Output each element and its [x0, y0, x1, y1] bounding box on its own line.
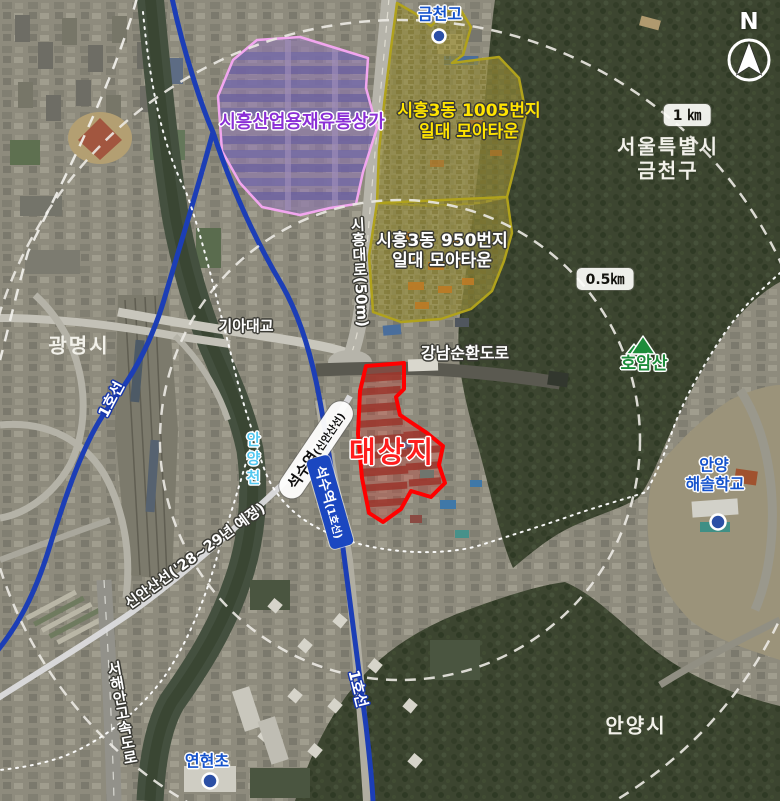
city-label-seoul-line1: 서울특별시	[617, 137, 719, 158]
satellite-map: N 금천고 시흥산업용재유통상가 시흥3동 1005번지 일대 모아타운 시흥3…	[0, 0, 780, 801]
seoksu-station-line1-line: (1호선)	[323, 502, 345, 540]
zone-site-label: 대상지	[349, 437, 435, 467]
poi-geumcheon-high-label: 금천고	[418, 7, 462, 24]
yeonhyeon-elementary-dot	[203, 774, 218, 789]
zone-moatown-1005-label-line1: 시흥3동 1005번지	[397, 103, 540, 121]
city-label-anyang: 안양시	[605, 716, 666, 737]
scale-label-500m: 0.5㎞	[577, 268, 634, 290]
poi-yeonhyeon-label: 연현초	[185, 754, 229, 771]
zone-market-label: 시흥산업용재유통상가	[219, 114, 385, 133]
scale-label-1km: 1 ㎞	[664, 104, 711, 126]
compass-n-label: N	[739, 10, 758, 34]
zone-moatown-1005-label-line2: 일대 모아타운	[419, 124, 519, 142]
geumcheon-high-dot	[433, 30, 446, 43]
poi-kia-bridge-label: 기아대교	[218, 319, 273, 335]
poi-anyang-haesol-label-line2: 해솔학교	[686, 477, 745, 494]
poi-anyang-haesol-label-line1: 안양	[699, 458, 728, 475]
zone-moatown-950-label-line1: 시흥3동 950번지	[376, 233, 507, 251]
anyang-haesol-school-dot	[711, 515, 726, 530]
zone-moatown-950-label-line2: 일대 모아타운	[392, 253, 492, 271]
road-gangnam-beltway-label: 강남순환도로	[421, 346, 509, 363]
city-label-gwangmyeong: 광명시	[48, 336, 109, 357]
anyang-stream-label: 안양천	[244, 432, 260, 489]
city-label-seoul-line2: 금천구	[637, 161, 698, 182]
poi-hoam-mountain-label: 호암산	[621, 356, 668, 374]
